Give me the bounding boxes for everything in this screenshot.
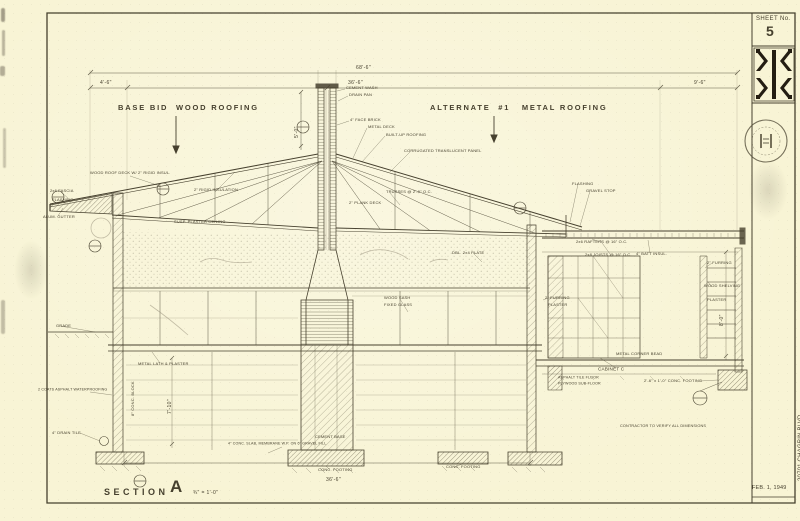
blueprint-sheet: BASE BID WOOD ROOFING ALTERNATE #1 METAL… <box>0 0 800 521</box>
callout-alternate-roofing: ALTERNATE #1 METAL ROOFING <box>430 103 607 112</box>
sheet-number-label: SHEET No. <box>756 16 791 22</box>
sheet-number: 5 <box>766 23 774 39</box>
junction-wall <box>527 225 536 452</box>
roof-truss <box>50 154 582 237</box>
right-wing <box>536 228 747 390</box>
callout-base-bid-roofing: BASE BID WOOD ROOFING <box>118 103 259 112</box>
scan-smudge <box>748 160 788 220</box>
footings <box>96 450 562 473</box>
drawing-date: FEB. 1, 1949 <box>752 485 787 491</box>
scan-edge-mark <box>2 30 5 56</box>
detail-callouts <box>52 121 722 487</box>
scan-edge-mark <box>0 66 5 76</box>
architect-seal-stamp <box>745 120 787 162</box>
scan-edge-mark <box>1 8 5 22</box>
scan-edge-mark <box>3 128 6 168</box>
scan-edge-mark <box>1 300 5 334</box>
section-drawing-linework <box>0 0 800 521</box>
section-title-label: SECTION <box>104 487 169 497</box>
section-title-letter: A <box>170 477 182 497</box>
title-block: 20701 CHAGRIN BLVD. WILLIAM B. MORRIS AR… <box>756 266 800 481</box>
sidebar-ornament <box>754 48 794 101</box>
scan-smudge <box>14 240 48 300</box>
